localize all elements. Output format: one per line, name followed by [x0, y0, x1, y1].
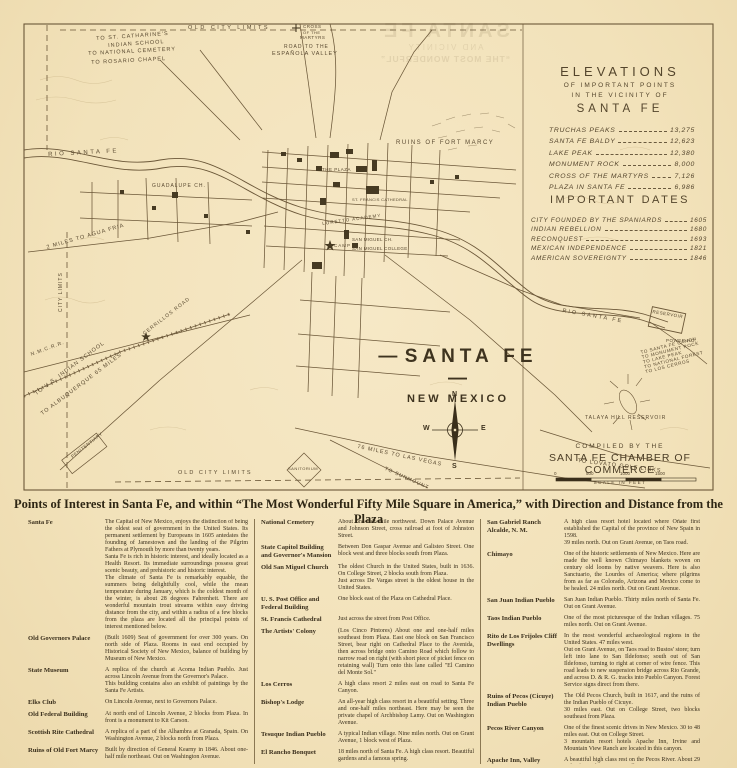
scale-tick: 1000: [620, 471, 630, 476]
bleedthrough-text: SANTA FE AND VICINITY “THE MOST WONDERFU…: [340, 20, 550, 64]
poi-entry: Apache Inn, Valley Ranch, N. M.A beautif…: [487, 757, 700, 764]
poi-entry: Old Federal BuildingAt north end of Linc…: [28, 711, 248, 725]
poi-desc: On Lincoln Avenue, next to Governors Pal…: [105, 699, 248, 707]
map-label-san-miguel-church: SAN MIGUEL CH.: [352, 237, 393, 242]
poi-term: Apache Inn, Valley Ranch, N. M.: [487, 757, 564, 764]
poi-desc: (Los Cinco Pintores) About one and one-h…: [338, 628, 474, 677]
date-value: 1605: [690, 217, 707, 224]
poi-entry: Taos Indian PuebloOne of the most pictur…: [487, 615, 700, 629]
compass-s: S: [452, 463, 457, 470]
compiled-by-block: COMPILED BY THE SANTA FE CHAMBER OF COMM…: [525, 443, 715, 485]
poi-column-3: San Gabriel Ranch Alcalde, N. M.A high c…: [480, 519, 706, 764]
poi-desc: In the most wonderful archaeological reg…: [564, 633, 700, 689]
map-label-espanola-valley: ESPAÑOLA VALLEY: [272, 51, 338, 57]
dates-title: IMPORTANT DATES: [527, 194, 713, 206]
poi-entry: Rito de Los Frijoles Cliff DwellingsIn t…: [487, 633, 700, 689]
cross-of-martyrs-icon: [292, 24, 300, 32]
elevation-name: CROSS OF THE MARTYRS: [549, 173, 649, 180]
poi-term: San Gabriel Ranch Alcalde, N. M.: [487, 519, 564, 547]
map-label-city-limits: CITY LIMITS: [58, 272, 64, 312]
poi-desc: San Juan Indian Pueblo. Thirty miles nor…: [564, 597, 700, 611]
map-label-old-city-limits-top: OLD CITY LIMITS: [188, 25, 270, 31]
date-value: 1821: [690, 245, 707, 252]
poi-entry: ChimayoOne of the historic settlements o…: [487, 551, 700, 593]
poi-term: Rito de Los Frijoles Cliff Dwellings: [487, 633, 564, 689]
date-name: AMERICAN SOVEREIGNTY: [531, 255, 627, 262]
elevation-value: 13,275: [670, 127, 695, 134]
scale-tick: 1500: [655, 471, 665, 476]
date-value: 1693: [690, 236, 707, 243]
compass-w: W: [423, 425, 430, 432]
poi-column-1: Santa FeThe Capital of New Mexico, enjoy…: [28, 519, 254, 764]
poi-entry: Old Governors Palace(Built 1609) Seat of…: [28, 635, 248, 663]
poi-entry: Old San Miguel ChurchThe oldest Church i…: [261, 564, 474, 592]
elevation-value: 7,126: [674, 173, 695, 180]
map-label-talaya-hill-reservoir: TALAYA HILL RESERVOIR: [585, 415, 666, 421]
poi-desc: One of the finest scenic drives in New M…: [564, 725, 700, 753]
poi-term: San Juan Indian Pueblo: [487, 597, 564, 611]
scale-tick: 0: [554, 471, 557, 476]
elevation-row: CROSS OF THE MARTYRS7,126: [549, 168, 695, 180]
map-label-sanitorium: SANITORIUM: [288, 466, 318, 471]
poi-term: The Artists' Colony: [261, 628, 338, 677]
bleedthrough-line: “THE MOST WONDERFUL”: [340, 54, 550, 64]
poi-entry: U. S. Post Office and Federal BuildingOn…: [261, 596, 474, 612]
bleedthrough-line: SANTA FE: [340, 20, 550, 43]
date-name: INDIAN REBELLION: [531, 226, 602, 233]
scale-tick: 500: [586, 471, 594, 476]
poi-columns: Santa FeThe Capital of New Mexico, enjoy…: [28, 519, 712, 764]
elevation-row: LAKE PEAK12,380: [549, 145, 695, 157]
map-label-camp: CAMP: [334, 243, 351, 248]
map-label-the-plaza: THE PLAZA: [322, 167, 351, 172]
date-row: INDIAN REBELLION1680: [531, 224, 707, 234]
poi-term: State Museum: [28, 667, 105, 695]
map-label-cross: CROSS: [303, 24, 322, 29]
poi-term: Chimayo: [487, 551, 564, 593]
poi-term: Ruins of Pecos (Cicuye) Indian Pueblo: [487, 693, 564, 721]
poi-term: Scottish Rite Cathedral: [28, 729, 105, 743]
poi-desc: At north end of Lincoln Avenue, 2 blocks…: [105, 711, 248, 725]
compass-rose: [432, 400, 478, 461]
poi-desc: One of the most picturesque of the India…: [564, 615, 700, 629]
date-row: MEXICAN INDEPENDENCE1821: [531, 243, 707, 253]
poi-entry: San Juan Indian PuebloSan Juan Indian Pu…: [487, 597, 700, 611]
elevation-value: 12,623: [670, 138, 695, 145]
elevation-name: SANTA FE BALDY: [549, 138, 615, 145]
poi-entry: Ruins of Old Fort MarcyBuilt by directio…: [28, 747, 248, 761]
dates-list: CITY FOUNDED BY THE SPANIARDS1605 INDIAN…: [531, 214, 707, 262]
poi-desc: One of the historic settlements of New M…: [564, 551, 700, 593]
map-sheet: SANTA FE AND VICINITY “THE MOST WONDERFU…: [0, 0, 737, 768]
elevation-name: LAKE PEAK: [549, 150, 593, 157]
poi-desc: A high class resort 2 miles east on road…: [338, 681, 474, 695]
date-name: MEXICAN INDEPENDENCE: [531, 245, 627, 252]
date-row: CITY FOUNDED BY THE SPANIARDS1605: [531, 214, 707, 224]
poi-term: Elks Club: [28, 699, 105, 707]
poi-term: Ruins of Old Fort Marcy: [28, 747, 105, 761]
poi-entry: State MuseumA replica of the church at A…: [28, 667, 248, 695]
poi-term: Tesuque Indian Pueblo: [261, 731, 338, 745]
date-value: 1846: [690, 255, 707, 262]
poi-entry: The Artists' Colony(Los Cinco Pintores) …: [261, 628, 474, 677]
scale-label: SCALE IN FEET: [525, 480, 715, 485]
poi-entry: Los CerrosA high class resort 2 miles ea…: [261, 681, 474, 695]
poi-term: Old San Miguel Church: [261, 564, 338, 592]
elevation-row: SANTA FE BALDY12,623: [549, 134, 695, 146]
map-label-old-city-limits-bottom: OLD CITY LIMITS: [178, 470, 253, 476]
elevations-list: TRUCHAS PEAKS13,275 SANTA FE BALDY12,623…: [549, 122, 695, 191]
poi-entry: San Gabriel Ranch Alcalde, N. M.A high c…: [487, 519, 700, 547]
elevation-value: 8,000: [674, 161, 695, 168]
elevations-subtitle1: OF IMPORTANT POINTS: [527, 82, 713, 89]
poi-entry: Pecos River CanyonOne of the finest scen…: [487, 725, 700, 753]
elevation-value: 6,986: [674, 184, 695, 191]
camp-star-icon: [141, 240, 335, 341]
poi-term: Los Cerros: [261, 681, 338, 695]
poi-term: State Capitol Building and Governor's Ma…: [261, 544, 338, 560]
elevations-panel: ELEVATIONS OF IMPORTANT POINTS IN THE VI…: [527, 64, 713, 191]
date-row: RECONQUEST1693: [531, 233, 707, 243]
poi-entry: St. Francis CathedralJust across the str…: [261, 616, 474, 624]
bleedthrough-line: AND VICINITY: [340, 43, 550, 52]
poi-term: Bishop's Lodge: [261, 699, 338, 727]
poi-entry: State Capitol Building and Governor's Ma…: [261, 544, 474, 560]
compass-e: E: [481, 425, 486, 432]
poi-desc: The Capital of New Mexico, enjoys the di…: [105, 519, 248, 631]
poi-entry: National CemeteryAbout one-half mile nor…: [261, 519, 474, 540]
map-label-ruins-fort-marcy: RUINS OF FORT MARCY: [396, 140, 494, 146]
poi-term: St. Francis Cathedral: [261, 616, 338, 624]
poi-entry: Santa FeThe Capital of New Mexico, enjoy…: [28, 519, 248, 631]
poi-term: U. S. Post Office and Federal Building: [261, 596, 338, 612]
poi-term: El Rancho Bonquet: [261, 749, 338, 763]
poi-entry: Elks ClubOn Lincoln Avenue, next to Gove…: [28, 699, 248, 707]
poi-term: Pecos River Canyon: [487, 725, 564, 753]
poi-term: Taos Indian Pueblo: [487, 615, 564, 629]
date-name: RECONQUEST: [531, 236, 583, 243]
poi-entry: Ruins of Pecos (Cicuye) Indian PuebloThe…: [487, 693, 700, 721]
poi-desc: 18 miles north of Santa Fe. A high class…: [338, 749, 474, 763]
poi-desc: The oldest Church in the United States, …: [338, 564, 474, 592]
map-title-block: SANTA FE NEW MEXICO: [373, 346, 543, 405]
poi-desc: About one-half mile northwest. Down Pala…: [338, 519, 474, 540]
map-title: SANTA FE: [373, 346, 543, 390]
elevation-row: TRUCHAS PEAKS13,275: [549, 122, 695, 134]
poi-desc: Built by direction of General Kearny in …: [105, 747, 248, 761]
compiled-by-line1: COMPILED BY THE: [525, 443, 715, 450]
elevations-subtitle3: SANTA FE: [527, 103, 713, 115]
poi-desc: A replica of a part of the Alhambra at G…: [105, 729, 248, 743]
elevation-row: PLAZA IN SANTA FE6,986: [549, 180, 695, 192]
poi-term: Santa Fe: [28, 519, 105, 631]
poi-entry: El Rancho Bonquet18 miles north of Santa…: [261, 749, 474, 763]
poi-desc: A beautiful high class rest on the Pecos…: [564, 757, 700, 764]
date-name: CITY FOUNDED BY THE SPANIARDS: [531, 217, 662, 224]
elevation-name: MONUMENT ROCK: [549, 161, 620, 168]
poi-term: National Cemetery: [261, 519, 338, 540]
poi-desc: A high class resort hotel located where …: [564, 519, 700, 547]
map-label-san-miguel-college: SAN MIGUEL COLLEGE: [352, 246, 408, 251]
map-label-guadalupe-church: GUADALUPE CH.: [152, 183, 206, 189]
poi-entry: Scottish Rite CathedralA replica of a pa…: [28, 729, 248, 743]
poi-desc: Just across the street from Post Office.: [338, 616, 474, 624]
map-label-martyrs: MARTYRS: [300, 35, 325, 40]
date-value: 1680: [690, 226, 707, 233]
poi-desc: A typical Indian village. Nine miles nor…: [338, 731, 474, 745]
poi-desc: One block east of the Plaza on Cathedral…: [338, 596, 474, 612]
poi-desc: A replica of the church at Acoma Indian …: [105, 667, 248, 695]
poi-term: Old Governors Palace: [28, 635, 105, 663]
map-label-road-to-the: ROAD TO THE: [284, 44, 329, 50]
poi-desc: The Old Pecos Church, built in 1617, and…: [564, 693, 700, 721]
elevation-row: MONUMENT ROCK8,000: [549, 157, 695, 169]
map-subtitle: NEW MEXICO: [373, 393, 543, 405]
poi-desc: (Built 1609) Seat of government for over…: [105, 635, 248, 663]
elevations-subtitle2: IN THE VICINITY OF: [527, 92, 713, 99]
poi-entry: Bishop's LodgeAn all-year high class res…: [261, 699, 474, 727]
map-label-st-francis-cathedral: ST. FRANCIS CATHEDRAL: [352, 197, 408, 202]
elevations-title: ELEVATIONS: [527, 64, 713, 79]
elevation-name: PLAZA IN SANTA FE: [549, 184, 625, 191]
elevation-value: 12,380: [670, 150, 695, 157]
elevation-name: TRUCHAS PEAKS: [549, 127, 616, 134]
date-row: AMERICAN SOVEREIGNTY1846: [531, 252, 707, 262]
poi-entry: Tesuque Indian PuebloA typical Indian vi…: [261, 731, 474, 745]
poi-desc: An all-year high class resort in a beaut…: [338, 699, 474, 727]
talaya-hill: [604, 374, 650, 430]
poi-term: Old Federal Building: [28, 711, 105, 725]
poi-column-2: National CemeteryAbout one-half mile nor…: [254, 519, 480, 764]
important-dates-panel: IMPORTANT DATES CITY FOUNDED BY THE SPAN…: [527, 194, 713, 262]
sanitorium-shape: [62, 433, 321, 487]
poi-desc: Between Don Gaspar Avenue and Galisteo S…: [338, 544, 474, 560]
